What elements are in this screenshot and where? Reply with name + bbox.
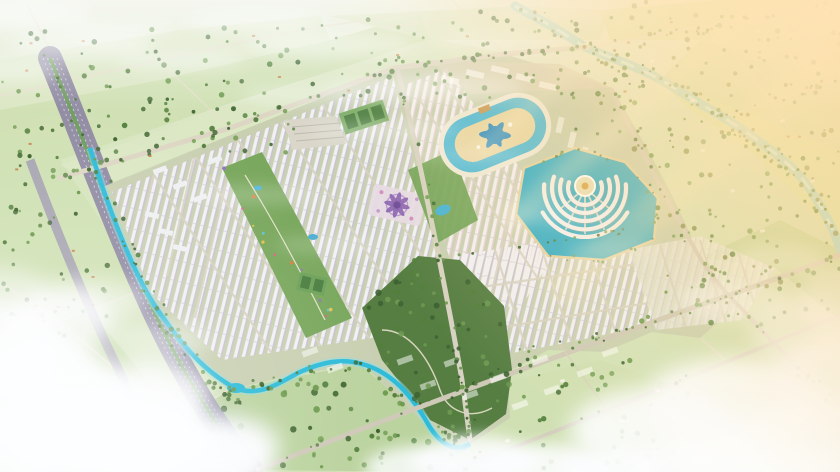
aerial-render <box>0 0 840 472</box>
warm-tint <box>0 0 840 472</box>
atmosphere <box>0 0 840 472</box>
scene-svg <box>0 0 840 472</box>
